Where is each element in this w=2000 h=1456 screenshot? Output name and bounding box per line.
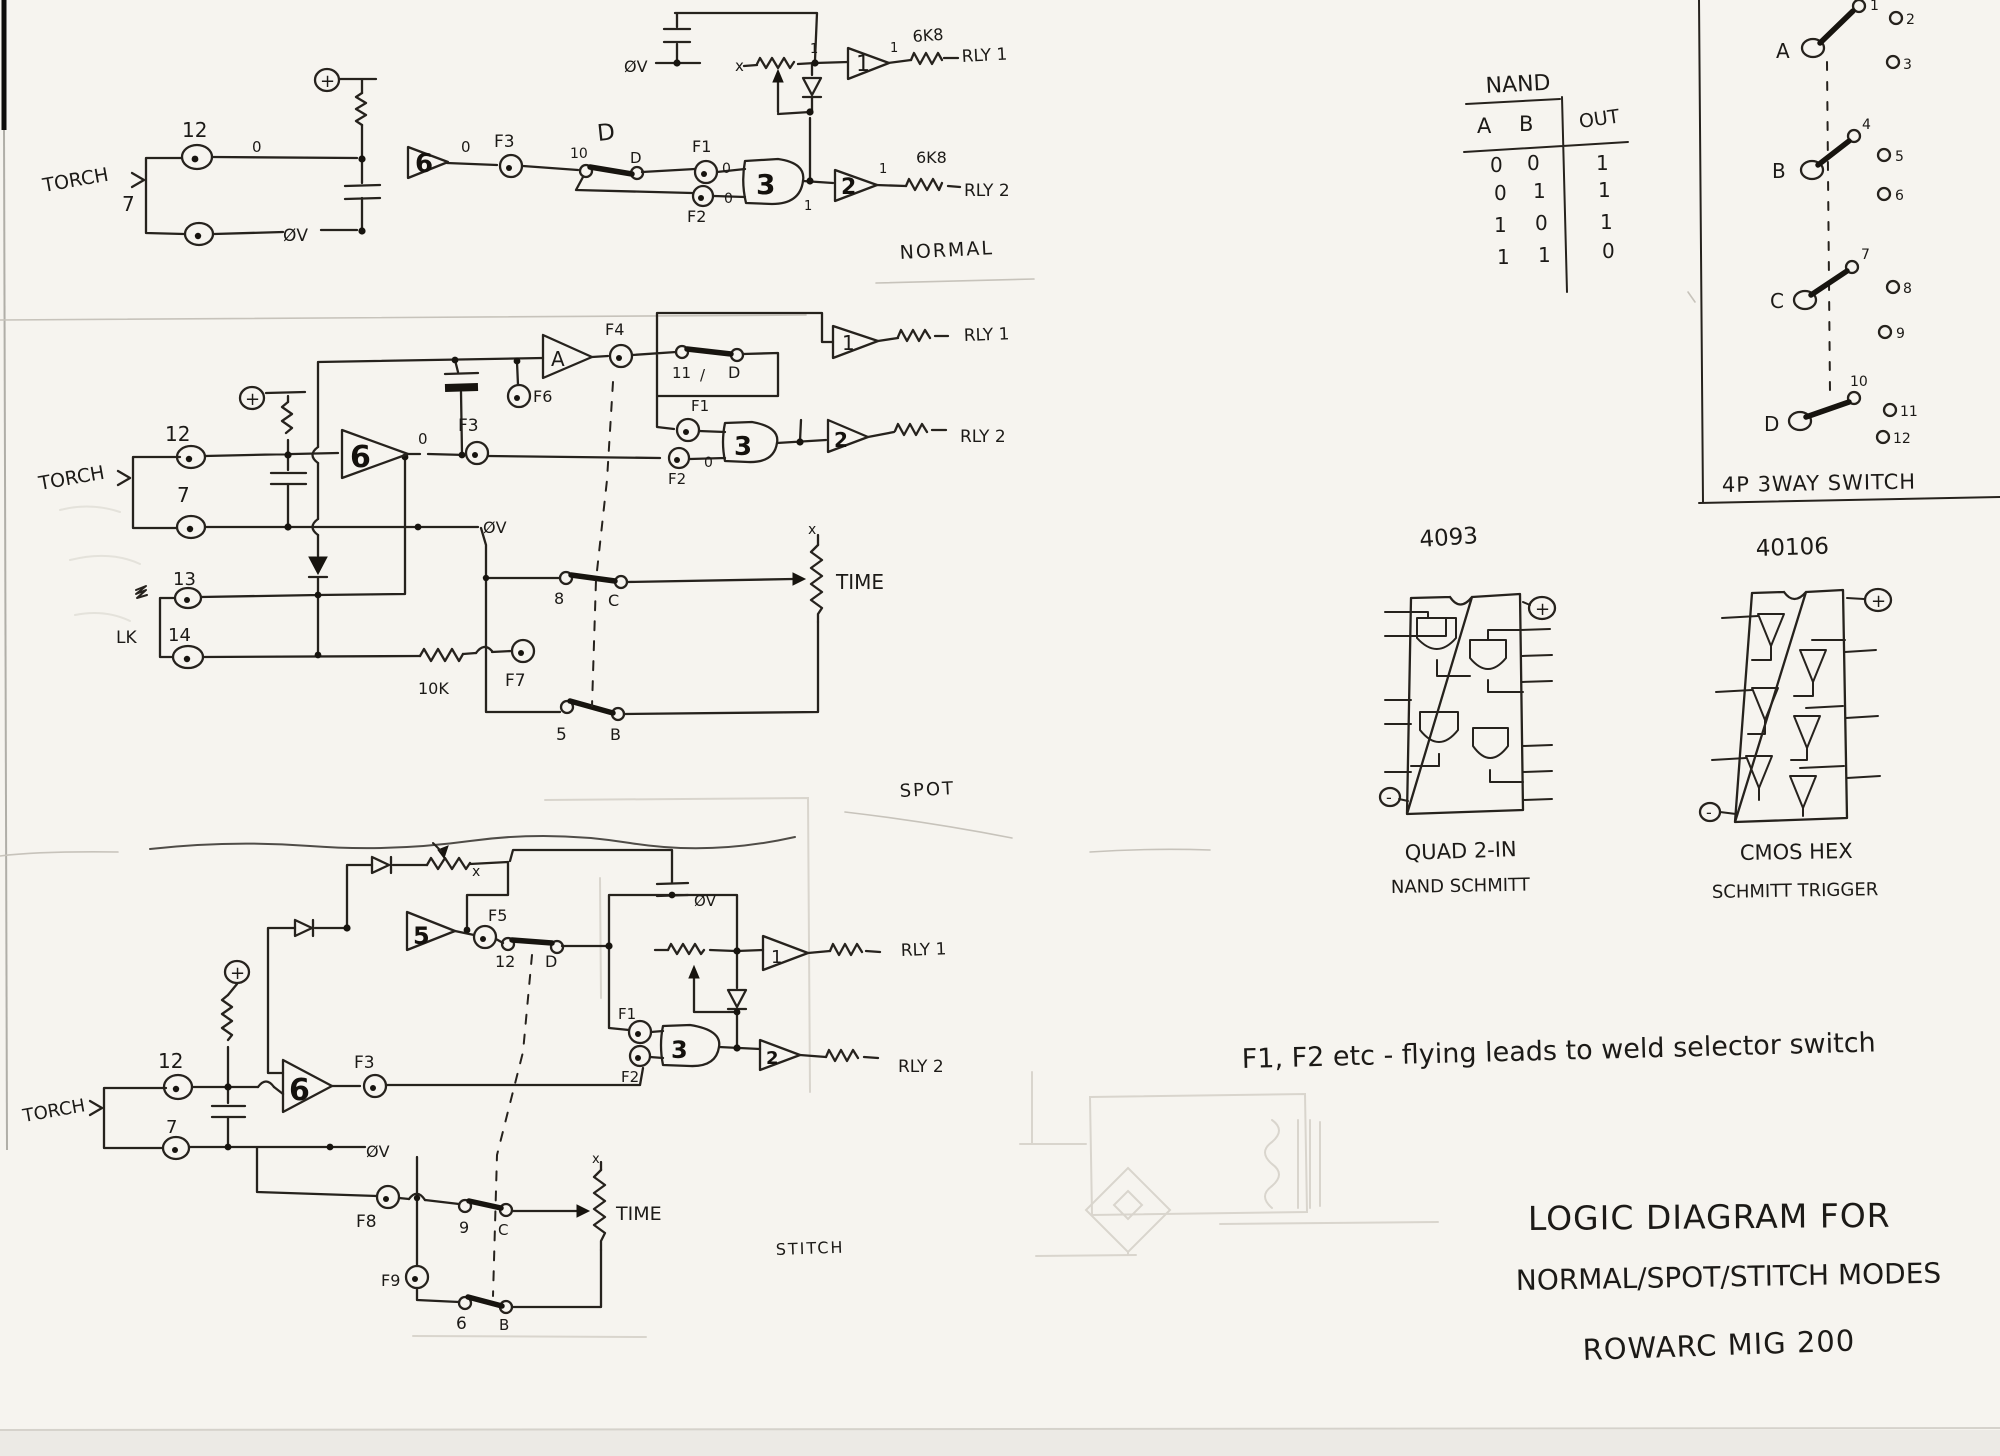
link-label: LK [116,628,137,648]
flying-lead-f3 [466,442,488,464]
flying-lead-f2 [630,1046,650,1066]
plus-label: + [320,71,335,92]
pole-b [1801,130,1860,179]
ic-caption: QUAD 2-IN [1404,837,1517,865]
link-scribble [136,586,147,598]
resistor-zigzags [356,53,942,190]
x-net-label: x [735,57,744,75]
stitch-caption: STITCH [775,1238,844,1259]
rly2-label: RLY 2 [960,427,1006,447]
ic-part-number: 4093 [1419,523,1479,553]
f7-label: F7 [505,671,526,691]
pole-d [1789,392,1860,430]
r-6k8-label: 6K8 [912,25,944,46]
sw8-label: 8 [554,589,564,608]
terminal-12 [177,446,205,468]
f5-label: F5 [488,906,507,925]
ic-caption: CMOS HEX [1740,839,1853,865]
mode-switch-c [560,572,627,588]
gate-a-letter: A [551,347,565,371]
col-out: OUT [1578,105,1622,132]
gate-6-number: 6 [289,1073,310,1108]
f4-label: F4 [605,320,624,339]
nand-truth-table: NAND A B OUT 0 0 1 0 1 1 1 0 1 1 1 0 [1464,71,1628,292]
r-6k8-label: 6K8 [916,148,947,167]
sw9-label: 9 [459,1218,469,1237]
swb-label: B [610,725,621,744]
f1-label: F1 [618,1005,636,1023]
f8-label: F8 [356,1212,377,1232]
ic-40106: 40106 + - CMOS HEX SCHMITT TRIGGER [1700,533,1891,903]
terminal-7-label: 7 [166,1117,177,1138]
flying-leads-note: F1, F2 etc - flying leads to weld select… [1241,1027,1876,1075]
cell: 1 [1600,210,1613,234]
normal-caption: NORMAL [899,237,994,264]
terminal-14-label: 14 [168,625,191,646]
time-label: TIME [835,570,884,594]
logic-0: 0 [461,138,471,156]
pole-c [1794,261,1858,309]
ic-caption: NAND SCHMITT [1391,875,1531,898]
pole-d-label: D [1764,412,1779,436]
diode [803,78,821,97]
trimmer-plate [445,387,478,388]
plus-pin: + [1523,597,1555,620]
contact-label: 1 [1870,0,1879,14]
f2-label: F2 [687,207,706,226]
ov-label: ØV [366,1142,390,1161]
schematic-canvas: + TORCH 12 7 0 ØV 6 0 F3 10 D D F1 0 F2 … [0,0,2000,1456]
contact-label: 6 [1895,188,1904,204]
resistor-zigzags [282,330,930,661]
flying-lead-f7 [512,640,534,662]
handwritten-notes: F1, F2 etc - flying leads to weld select… [1241,1027,1941,1367]
plus-supply: + [240,387,264,410]
terminal-7-label: 7 [122,192,135,216]
logic-1: 1 [890,41,898,56]
rly1-label: RLY 1 [900,939,946,961]
flying-lead-f1 [629,1021,651,1043]
ic-4093: 4093 + - QUAD 2-IN NAND SCHMITT [1380,523,1555,898]
minus-label: - [1386,788,1392,807]
plus-label: + [230,963,245,984]
swc-label: C [608,591,619,610]
gate-6-number: 6 [350,440,371,475]
sw6-label: 6 [456,1314,467,1334]
slash: / [700,366,706,384]
terminal-12-label: 12 [158,1049,183,1073]
flying-lead-f9 [406,1266,428,1288]
swd-label: D [728,363,740,382]
normal-section: + TORCH 12 7 0 ØV 6 0 F3 10 D D F1 0 F2 … [40,13,1010,264]
col-a: A [1477,114,1492,138]
plus-label: + [1535,599,1550,620]
logic-1: 1 [879,162,887,177]
pole-b-label: B [1772,159,1786,183]
contact-label: 5 [1895,149,1904,165]
switch-pos-label: 10 [570,146,588,162]
spot-wires [133,313,948,714]
f9-label: F9 [381,1271,400,1290]
gate-1-number: 1 [842,331,855,355]
gang-dashed-link [592,382,613,706]
minus-pin: - [1700,803,1736,822]
ov-label: ØV [624,57,648,76]
torch-label: TORCH [40,164,110,197]
time-wiper-arrow [577,1205,589,1217]
contact-label: 12 [1893,431,1911,447]
diode-top [372,857,391,873]
x-net-label: x [592,1152,600,1167]
gate-2-number: 2 [766,1048,779,1069]
flying-lead-f3 [500,155,522,177]
gang-dashed-link [493,955,532,1296]
cell: 1 [1533,179,1546,203]
col-b: B [1519,112,1533,136]
swb-label: B [499,1316,509,1334]
terminal-7-label: 7 [177,483,190,507]
cell: 1 [1494,213,1507,237]
torch-arrow [132,173,144,187]
minus-pin: - [1380,788,1408,807]
mode-switch-d [676,346,743,361]
table-title: NAND [1485,71,1551,99]
torch-arrow [90,1101,102,1115]
f3-label: F3 [354,1053,375,1073]
plus-label: + [1871,591,1886,612]
ov-label: ØV [694,892,717,910]
f6-label: F6 [533,387,552,406]
gate-1-number: 1 [771,947,782,968]
logic-0: 0 [704,455,713,471]
logic-0: 0 [252,138,262,156]
f3-label: F3 [458,416,479,436]
sw12-label: 12 [495,952,515,971]
contact-label: 8 [1903,281,1912,297]
spot-caption: SPOT [899,778,955,802]
gate-3-and [661,1025,719,1066]
flying-lead-f4 [610,345,632,367]
swc-label: C [498,1221,508,1239]
switch-panel-caption: 4P 3WAY SWITCH [1722,470,1917,497]
title-line-3: ROWARC MIG 200 [1582,1323,1856,1366]
gate-2-number: 2 [841,175,856,200]
torch-label: TORCH [20,1095,87,1127]
gate-5-number: 5 [413,922,430,950]
terminal-12 [164,1075,192,1099]
rly1-label: RLY 1 [963,324,1009,346]
f1-label: F1 [692,137,711,156]
plus-supply: + [315,69,339,92]
pencil-ghost-sketch [60,506,1438,1337]
flying-lead-f2 [693,186,713,206]
cell: 1 [1598,178,1611,202]
flying-lead-f5 [474,926,496,948]
f3-label: F3 [494,132,515,152]
junction-dots [358,59,818,234]
title-line-2: NORMAL/SPOT/STITCH MODES [1516,1257,1942,1297]
pole-c-label: C [1770,289,1784,313]
sw11-label: 11 [672,364,691,382]
terminal-14 [173,646,203,668]
gate-3-number: 3 [734,432,752,462]
plus-pin: + [1847,589,1891,612]
cell: 1 [1596,151,1609,175]
f2-label: F2 [621,1068,639,1086]
mode-switch-d [502,938,563,953]
spot-section: + TORCH 12 7 13 14 LK 0 [36,313,1010,802]
ic-caption: SCHMITT TRIGGER [1712,879,1879,903]
scanned-schematic-page: + TORCH 12 7 0 ØV 6 0 F3 10 D D F1 0 F2 … [0,0,2000,1456]
f1-label: F1 [691,397,709,415]
ov-label: ØV [283,226,308,246]
plus-supply: + [225,961,249,984]
flying-lead-f3 [364,1075,386,1097]
terminal-13 [175,588,201,608]
gate-1-number: 1 [856,52,870,77]
contact-label: 2 [1906,12,1915,28]
logic-1: 1 [810,42,818,57]
contact-label: 10 [1850,374,1868,390]
x-net-label: x [808,522,816,538]
terminal-7 [177,516,205,538]
contact-label: 11 [1900,404,1918,420]
ic-part-number: 40106 [1755,533,1829,562]
switch-panel: A B C D 1 2 3 4 5 6 7 8 9 10 11 12 4P 3W… [1688,0,2000,503]
logic-0: 0 [418,430,428,448]
title-line-1: LOGIC DIAGRAM FOR [1528,1196,1891,1238]
pole-a-label: A [1776,39,1790,63]
cell: 1 [1538,243,1551,267]
minus-label: - [1706,803,1712,822]
diode-mid [728,990,746,1009]
terminal-13-label: 13 [173,569,196,590]
contact-label: 4 [1862,117,1871,133]
wiper-arrow [773,70,783,82]
diode-left [295,920,313,936]
flying-lead-f8 [377,1186,399,1208]
flying-lead-f1 [695,161,717,183]
switch-d-label: D [630,149,642,167]
cell: 0 [1494,181,1507,205]
diode [309,557,327,577]
gang-d-label: D [596,119,616,147]
inverter-triangles [1746,614,1826,808]
x-wiper-arrow [689,966,699,978]
flying-lead-f2 [669,448,689,468]
gate-6-number: 6 [415,149,433,179]
cell: 1 [1497,245,1510,269]
mode-switch-b [459,1297,512,1313]
contact-label: 3 [1903,57,1912,73]
terminal-12-label: 12 [182,118,207,142]
ov-label: ØV [483,518,507,537]
cell: 0 [1602,239,1615,263]
torch-arrow [118,471,130,485]
cell: 0 [1490,153,1503,177]
open-contacts [1877,12,1902,443]
sw5-label: 5 [556,725,567,745]
gate-1-buffer [833,326,878,358]
f2-label: F2 [668,470,686,488]
mode-switch-c [459,1200,512,1216]
flying-lead-f1 [677,419,699,441]
logic-0: 0 [722,161,731,177]
gate-1-buffer [763,936,808,970]
rly2-label: RLY 2 [964,181,1010,201]
gate-3-number: 3 [756,168,775,201]
swd-label: D [545,952,557,971]
time-label: TIME [615,1203,662,1225]
stitch-section: + TORCH 12 7 F3 F5 [20,843,947,1334]
r10k-label: 10K [418,679,449,698]
terminal-7 [163,1137,189,1159]
terminal-12 [182,145,212,169]
x-net-label: x [472,864,480,880]
plus-label: + [245,389,260,410]
rly1-label: RLY 1 [961,45,1008,67]
terminal-7 [185,223,213,245]
gate-2-number: 2 [834,428,848,452]
mode-switch-d [580,165,643,179]
torch-label: TORCH [36,462,106,495]
crossover-bumps [313,447,493,653]
pot-wiper-arrow [438,846,448,858]
contact-label: 9 [1896,326,1905,342]
terminal-12-label: 12 [165,422,190,446]
cell: 0 [1535,211,1548,235]
time-wiper-arrow [793,573,805,585]
logic-0: 0 [724,191,733,207]
cell: 0 [1527,151,1540,175]
contact-label: 7 [1861,247,1870,263]
rly2-label: RLY 2 [898,1057,944,1077]
logic-1: 1 [804,199,812,214]
flying-lead-f6 [508,385,530,407]
gate-3-number: 3 [671,1036,688,1064]
pole-a [1802,0,1865,57]
